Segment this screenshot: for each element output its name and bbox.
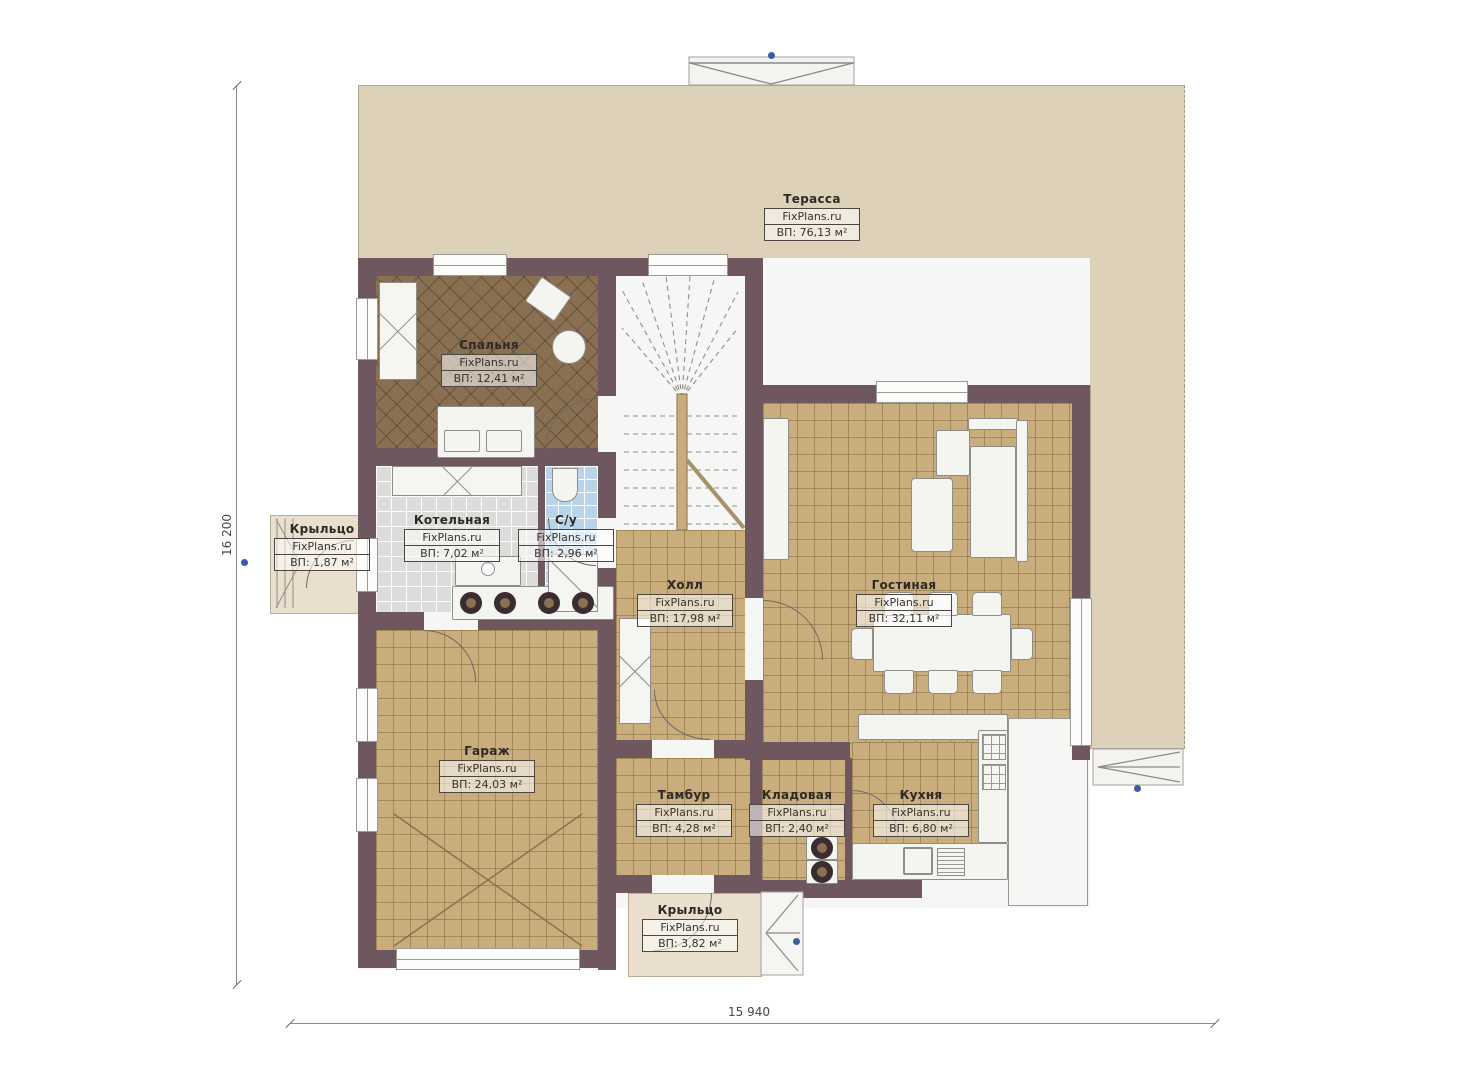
equipment-burner [538,592,560,614]
room-name: Гараж [439,744,535,758]
living-room-window [876,381,968,403]
front-door-opening [652,875,714,893]
watermark: FixPlans.ru [637,594,733,611]
door-opening [745,598,763,680]
wall [598,630,616,970]
cooktop [982,764,1006,790]
watermark: FixPlans.ru [441,354,537,371]
bedroom-side-window [356,298,378,360]
terrace-floor-right-arm [1090,385,1185,749]
room-label-vestibule: Тамбур FixPlans.ru ВП: 4,28 м² [636,788,732,837]
watermark: FixPlans.ru [636,804,732,821]
room-name: Кухня [873,788,969,802]
terrace-steps-marker [1092,748,1184,788]
watermark: FixPlans.ru [642,919,738,936]
dining-chair [972,670,1002,694]
room-label-kitchen: Кухня FixPlans.ru ВП: 6,80 м² [873,788,969,837]
room-name: Терасса [764,192,860,206]
washer-drum [811,837,833,859]
floor-plan: 16 200 15 940 [0,0,1474,1080]
room-label-porch-bottom: Крыльцо FixPlans.ru ВП: 3,82 м² [642,903,738,952]
room-area: ВП: 6,80 м² [873,821,969,837]
stairs [616,276,745,530]
room-label-hall: Холл FixPlans.ru ВП: 17,98 м² [637,578,733,627]
dimension-tick [232,980,241,989]
bedroom-window [433,254,507,276]
room-label-living: Гостиная FixPlans.ru ВП: 32,11 м² [856,578,952,627]
dimension-line-vertical [236,85,237,985]
room-area: ВП: 2,96 м² [518,546,614,562]
dimension-tick [232,81,241,90]
watermark: FixPlans.ru [764,208,860,225]
watermark: FixPlans.ru [404,529,500,546]
dishwasher [937,848,965,876]
washer-drum [811,861,833,883]
room-label-terrace: Терасса FixPlans.ru ВП: 76,13 м² [764,192,860,241]
equipment-burner [460,592,482,614]
room-name: Кладовая [749,788,845,802]
dining-chair [928,670,958,694]
equipment-burner [572,592,594,614]
room-area: ВП: 32,11 м² [856,611,952,627]
watermark: FixPlans.ru [856,594,952,611]
cooktop [982,734,1006,760]
sofa-armrest [968,418,1018,430]
room-name: Холл [637,578,733,592]
room-area: ВП: 1,87 м² [274,555,370,571]
room-area: ВП: 12,41 м² [441,371,537,387]
dimension-height-label: 16 200 [220,514,234,556]
marker-dot [793,938,800,945]
porch-bottom-steps-marker [760,891,806,977]
room-area: ВП: 2,40 м² [749,821,845,837]
room-area: ВП: 4,28 м² [636,821,732,837]
living-partition [763,418,789,560]
room-label-bedroom: Спальня FixPlans.ru ВП: 12,41 м² [441,338,537,387]
room-label-porch-left: Крыльцо FixPlans.ru ВП: 1,87 м² [274,522,370,571]
stairs-window [648,254,728,276]
marker-dot [1134,785,1141,792]
wall [745,276,763,760]
room-area: ВП: 3,82 м² [642,936,738,952]
dimension-line-horizontal [290,1023,1215,1024]
equipment-burner [494,592,516,614]
garage-door [396,948,580,970]
watermark: FixPlans.ru [439,760,535,777]
watermark: FixPlans.ru [518,529,614,546]
sofa-chaise [936,430,970,476]
dimension-width-label: 15 940 [728,1005,770,1019]
watermark: FixPlans.ru [274,538,370,555]
room-label-boiler: Котельная FixPlans.ru ВП: 7,02 м² [404,513,500,562]
room-name: Крыльцо [274,522,370,536]
room-name: С/у [518,513,614,527]
garage-window [356,778,378,832]
door-opening [598,396,616,452]
coffee-table [911,478,953,552]
sofa-back [1016,420,1028,562]
room-label-storage: Кладовая FixPlans.ru ВП: 2,40 м² [749,788,845,837]
dining-chair [972,592,1002,616]
door-opening [652,740,714,758]
bed-pillow [486,430,522,452]
room-name: Крыльцо [642,903,738,917]
room-area: ВП: 7,02 м² [404,546,500,562]
wardrobe [379,282,417,380]
marker-dot [768,52,775,59]
wall [762,742,850,760]
hall-wardrobe [619,618,651,724]
garage-window [356,688,378,742]
dining-chair [884,670,914,694]
watermark: FixPlans.ru [749,804,845,821]
room-area: ВП: 17,98 м² [637,611,733,627]
dining-chair [1011,628,1033,660]
room-name: Тамбур [636,788,732,802]
room-name: Котельная [404,513,500,527]
marker-dot [241,559,248,566]
room-area: ВП: 76,13 м² [764,225,860,241]
room-name: Спальня [441,338,537,352]
dining-chair [851,628,873,660]
toilet [552,468,578,502]
living-room-terrace-door [1070,598,1092,746]
boiler-cabinet [392,466,522,496]
round-table [552,330,586,364]
sofa-seat [970,446,1016,558]
room-area: ВП: 24,03 м² [439,777,535,793]
wall [845,758,852,880]
room-name: Гостиная [856,578,952,592]
bed-pillow [444,430,480,452]
kitchen-sink [903,847,933,875]
boiler-dial [481,562,495,576]
room-label-garage: Гараж FixPlans.ru ВП: 24,03 м² [439,744,535,793]
watermark: FixPlans.ru [873,804,969,821]
room-label-bathroom: С/у FixPlans.ru ВП: 2,96 м² [518,513,614,562]
